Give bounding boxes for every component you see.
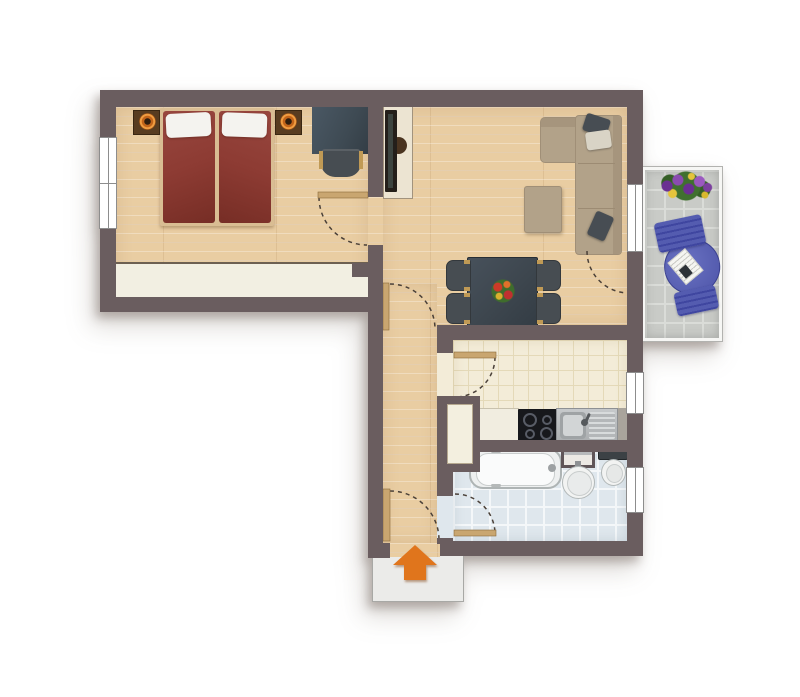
- wall-kitchen-bath-divider: [470, 440, 643, 452]
- burner-small-2: [525, 429, 535, 439]
- wall-right-kitchen-upper: [627, 340, 643, 373]
- desk-chair-armrest-right: [359, 151, 363, 169]
- balcony-door-window: [627, 184, 643, 252]
- flower-box: [659, 171, 713, 201]
- washbasin-bowl: [567, 471, 592, 496]
- bathtub: [469, 448, 562, 489]
- wall-bathroom-left-upper: [437, 470, 453, 496]
- bedroom-window: [99, 137, 117, 229]
- dining-chair-2: [446, 293, 471, 324]
- wall-bathroom-left-lower: [437, 538, 453, 544]
- window-mullion: [635, 468, 636, 512]
- chair-armrest: [537, 287, 543, 291]
- dining-chair-4: [536, 293, 561, 324]
- kitchen-door-threshold: [437, 353, 453, 400]
- chair-armrest: [464, 293, 470, 297]
- sofa-cushion-light: [585, 129, 612, 150]
- window-mullion: [100, 183, 116, 184]
- built-in-cupboard: [447, 404, 473, 464]
- newspaper-photo: [679, 265, 693, 279]
- ottoman: [524, 186, 562, 233]
- window-mullion: [635, 185, 636, 251]
- kitchen-worktop: [478, 408, 519, 443]
- bedside-lamp-right: [280, 113, 297, 130]
- entrance-arrow: [393, 545, 437, 581]
- bedside-lamp-left: [139, 113, 156, 130]
- bathtub-faucet: [548, 464, 556, 472]
- sink-bowl-inner: [563, 415, 583, 436]
- bathtub-basin: [476, 453, 555, 486]
- wall-right-living-upper: [627, 107, 643, 185]
- cooktop: [518, 409, 557, 443]
- kitchen-window: [626, 372, 644, 414]
- desk-chair-armrest-left: [319, 151, 323, 169]
- desk: [312, 107, 369, 154]
- pillow-left: [165, 112, 211, 138]
- dining-chair-3: [536, 260, 561, 291]
- sink-unit: [556, 408, 618, 443]
- sofa-seam-1: [578, 163, 615, 164]
- entrance-arrow-head: [393, 545, 437, 565]
- tv: [385, 110, 397, 192]
- chair-armrest: [464, 260, 470, 264]
- wall-wardrobe-niche-stub: [352, 263, 368, 277]
- chair-armrest: [537, 320, 543, 324]
- balcony: [641, 166, 723, 342]
- wall-top: [100, 90, 643, 107]
- wall-bottom-right: [440, 541, 643, 556]
- washbasin-round: [562, 466, 595, 499]
- sofa-armrest-right: [613, 116, 621, 254]
- wall-hallway-bottom-stub: [368, 543, 390, 558]
- wall-right-bath-lower: [627, 512, 643, 541]
- dining-chair-1: [446, 260, 471, 291]
- chair-armrest: [464, 320, 470, 324]
- pillow-right: [222, 112, 268, 138]
- bathroom-door-threshold: [437, 496, 453, 538]
- chair-armrest: [464, 287, 470, 291]
- wall-left-upper: [100, 90, 116, 138]
- toilet-bowl: [601, 459, 626, 486]
- bathtub-handle-bottom: [491, 484, 501, 487]
- wall-kitchen-left-upper: [437, 340, 453, 353]
- window-mullion: [635, 373, 636, 413]
- burner-small-1: [542, 415, 552, 425]
- apartment-floor-plan: [0, 0, 800, 697]
- tv-screen: [388, 114, 393, 188]
- bedroom-door-threshold: [368, 197, 383, 245]
- burner-large-2: [540, 427, 553, 440]
- sofa-seam-2: [578, 208, 615, 209]
- wall-bedroom-bottom: [100, 297, 383, 312]
- floor-plan-canvas: [0, 0, 800, 697]
- chair-armrest: [537, 260, 543, 264]
- entrance-arrow-shaft: [404, 564, 426, 580]
- wall-right-kitchen-bath: [627, 413, 643, 468]
- wall-right-living-lower: [627, 251, 643, 325]
- burner-large-1: [523, 413, 537, 427]
- sink-drainer: [589, 412, 615, 439]
- bathroom-window: [626, 467, 644, 513]
- wall-bedroom-living-divider: [368, 107, 383, 197]
- chair-armrest: [537, 293, 543, 297]
- hallway-floor: [383, 283, 437, 543]
- toilet-seat: [606, 464, 623, 483]
- desk-chair: [321, 149, 361, 177]
- wardrobe: [112, 262, 369, 298]
- flower-centerpiece: [490, 278, 516, 304]
- wall-hallway-left: [368, 245, 383, 543]
- wall-kitchen-top: [437, 325, 643, 340]
